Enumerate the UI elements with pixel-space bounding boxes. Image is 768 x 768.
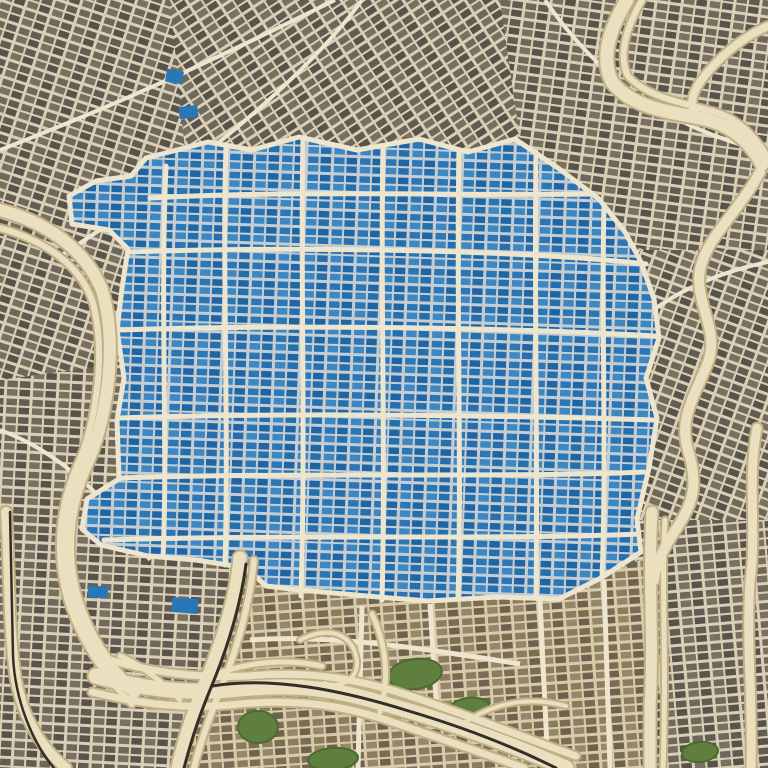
aerial-city-map <box>0 0 768 768</box>
district-major-street <box>535 152 536 598</box>
map-canvas[interactable] <box>0 0 768 768</box>
freeway <box>650 512 652 768</box>
pond <box>88 585 109 598</box>
district-major-street <box>301 140 303 596</box>
pond <box>171 597 198 614</box>
freeway <box>663 520 665 768</box>
district-major-street <box>458 150 459 599</box>
district-major-street <box>225 148 227 565</box>
district-major-street <box>163 166 166 557</box>
district-major-street <box>382 146 383 600</box>
park-area <box>238 711 278 743</box>
blue-district <box>69 137 659 601</box>
